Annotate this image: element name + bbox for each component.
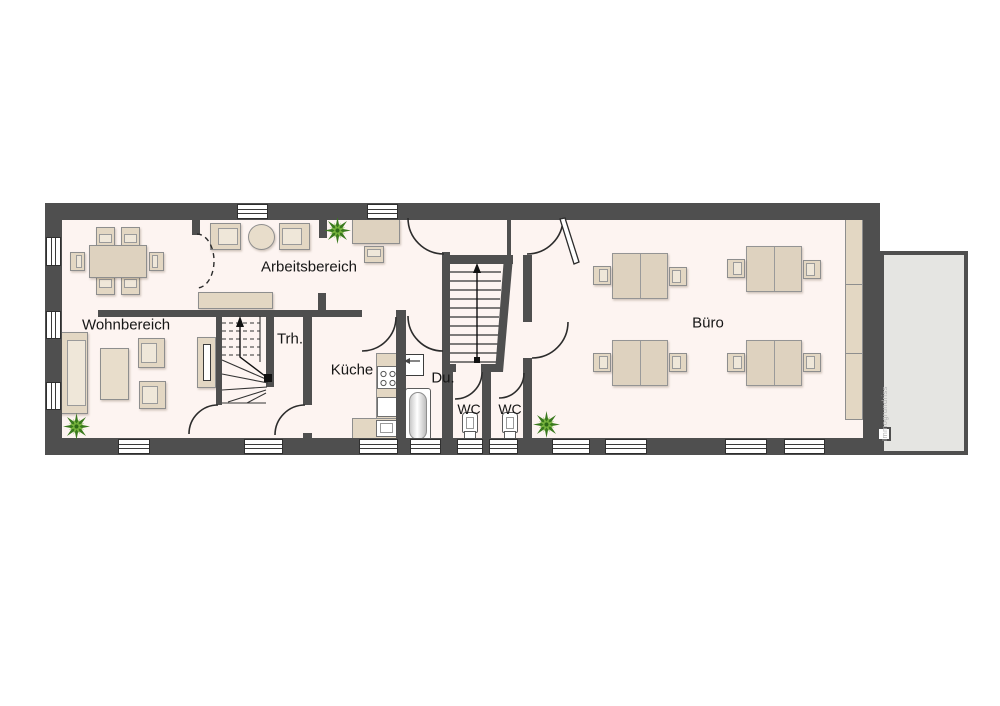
wall-stub-dining (192, 220, 200, 235)
wall-stair1-left (216, 315, 222, 405)
sideboard (198, 292, 273, 309)
room-label-dusche: Du. (431, 370, 454, 387)
wall-kitchen-left-stub (303, 433, 312, 438)
window (489, 439, 518, 454)
watermark: Immogrundriss (880, 386, 889, 441)
office-chair (803, 353, 821, 372)
coffee-table (100, 348, 129, 400)
armchair (279, 223, 310, 250)
office-chair (727, 259, 745, 278)
room-label-wc1: WC (457, 401, 480, 417)
room-label-treppenhaus: Trh. (277, 331, 303, 348)
floorplan-canvas: Wohnbereich Arbeitsbereich Trh. Küche Du… (0, 0, 1000, 706)
wall-landing-b (481, 364, 499, 372)
kitchen-appliance (376, 420, 397, 437)
wall-office-west-top (523, 255, 532, 322)
desk-chair (364, 246, 384, 263)
armchair (210, 223, 241, 250)
room-label-arbeitsbereich: Arbeitsbereich (261, 259, 357, 276)
dining-chair (121, 227, 140, 246)
dining-chair (96, 276, 115, 295)
wall-wc-divider (482, 372, 491, 438)
office-wall-cabinet (845, 217, 863, 420)
wall-exterior-top (45, 203, 880, 220)
tall-cabinet (197, 337, 216, 388)
room-label-kueche: Küche (331, 362, 374, 379)
office-desk (746, 340, 802, 386)
bathtub (405, 388, 431, 444)
wall-stair2-top (450, 255, 513, 264)
shower-tray (405, 354, 424, 376)
window (244, 439, 283, 454)
window (784, 439, 825, 454)
dining-chair (121, 276, 140, 295)
room-label-buero: Büro (692, 315, 724, 332)
room-label-wc2: WC (498, 401, 521, 417)
office-desk (612, 253, 668, 299)
wall-stub-arbeits-east (319, 220, 327, 238)
desk (352, 219, 400, 244)
wall-exterior-right (863, 203, 880, 455)
window (237, 204, 268, 219)
window (46, 382, 61, 410)
wall-office-west-bottom (523, 358, 532, 438)
window (552, 439, 590, 454)
window (118, 439, 150, 454)
dining-chair (96, 227, 115, 246)
dining-table (89, 245, 147, 278)
wall-kitchen-left (303, 317, 312, 405)
office-chair (593, 353, 611, 372)
office-chair (669, 353, 687, 372)
armchair (139, 381, 166, 409)
office-chair (803, 260, 821, 279)
room-label-wohnbereich: Wohnbereich (82, 317, 170, 334)
wall-kitchen-bath (396, 310, 406, 438)
window (367, 204, 398, 219)
terrace (880, 251, 968, 455)
window (725, 439, 767, 454)
wall-stair1-right (266, 315, 274, 387)
wall-stub-up (318, 293, 326, 310)
dining-chair (149, 252, 164, 271)
window (605, 439, 647, 454)
office-desk (612, 340, 668, 386)
office-chair (727, 353, 745, 372)
sofa (59, 332, 88, 414)
wall-stair2-left (442, 252, 450, 372)
round-side-table (248, 224, 275, 250)
office-chair (593, 266, 611, 285)
wall-hall-partition (507, 213, 511, 255)
armchair (138, 338, 165, 368)
window (457, 439, 483, 454)
office-chair (669, 267, 687, 286)
dining-chair (70, 252, 85, 271)
window (410, 439, 441, 454)
window (46, 311, 61, 339)
window (46, 237, 61, 266)
office-desk (746, 246, 802, 292)
window (359, 439, 398, 454)
